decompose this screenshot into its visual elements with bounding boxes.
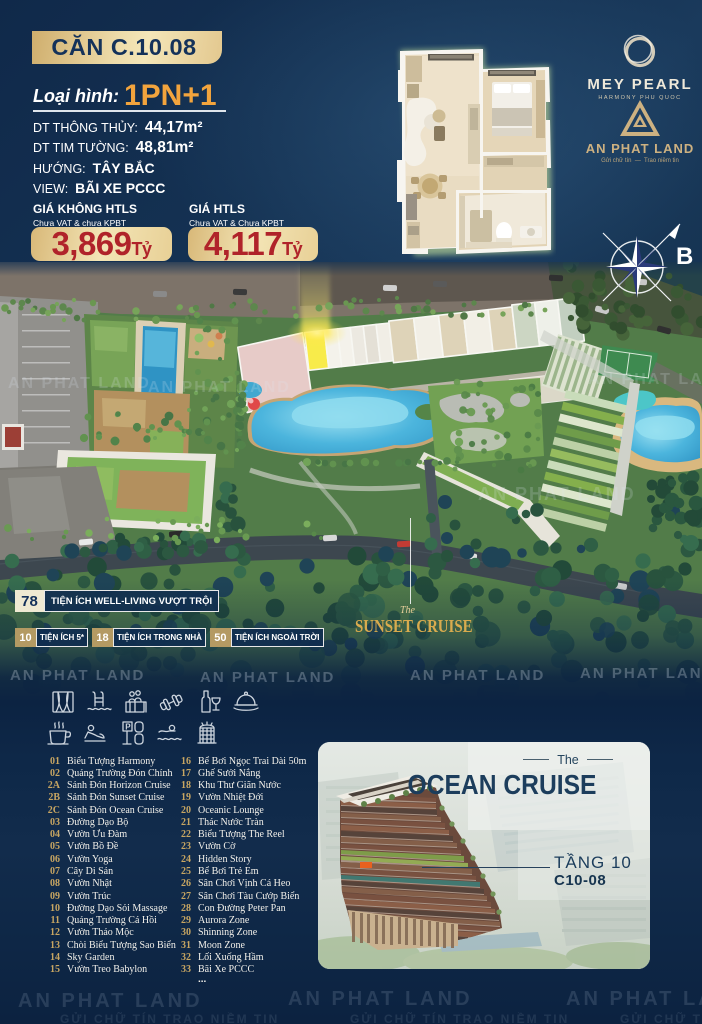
svg-text:AN PHAT LAND: AN PHAT LAND: [8, 375, 151, 392]
svg-text:AN PHAT LAND: AN PHAT LAND: [410, 667, 545, 684]
svg-text:AN PHAT LAND: AN PHAT LAND: [478, 484, 636, 504]
svg-text:AN PHAT LAND: AN PHAT LAND: [580, 665, 702, 682]
svg-text:AN PHAT LAND: AN PHAT LAND: [588, 371, 702, 388]
svg-text:AN PHAT LAND: AN PHAT LAND: [148, 379, 291, 396]
svg-text:P: P: [125, 723, 131, 732]
svg-text:AN PHAT LAND: AN PHAT LAND: [10, 667, 145, 684]
svg-text:B: B: [676, 243, 693, 270]
svg-text:AN PHAT LAND: AN PHAT LAND: [200, 669, 335, 686]
